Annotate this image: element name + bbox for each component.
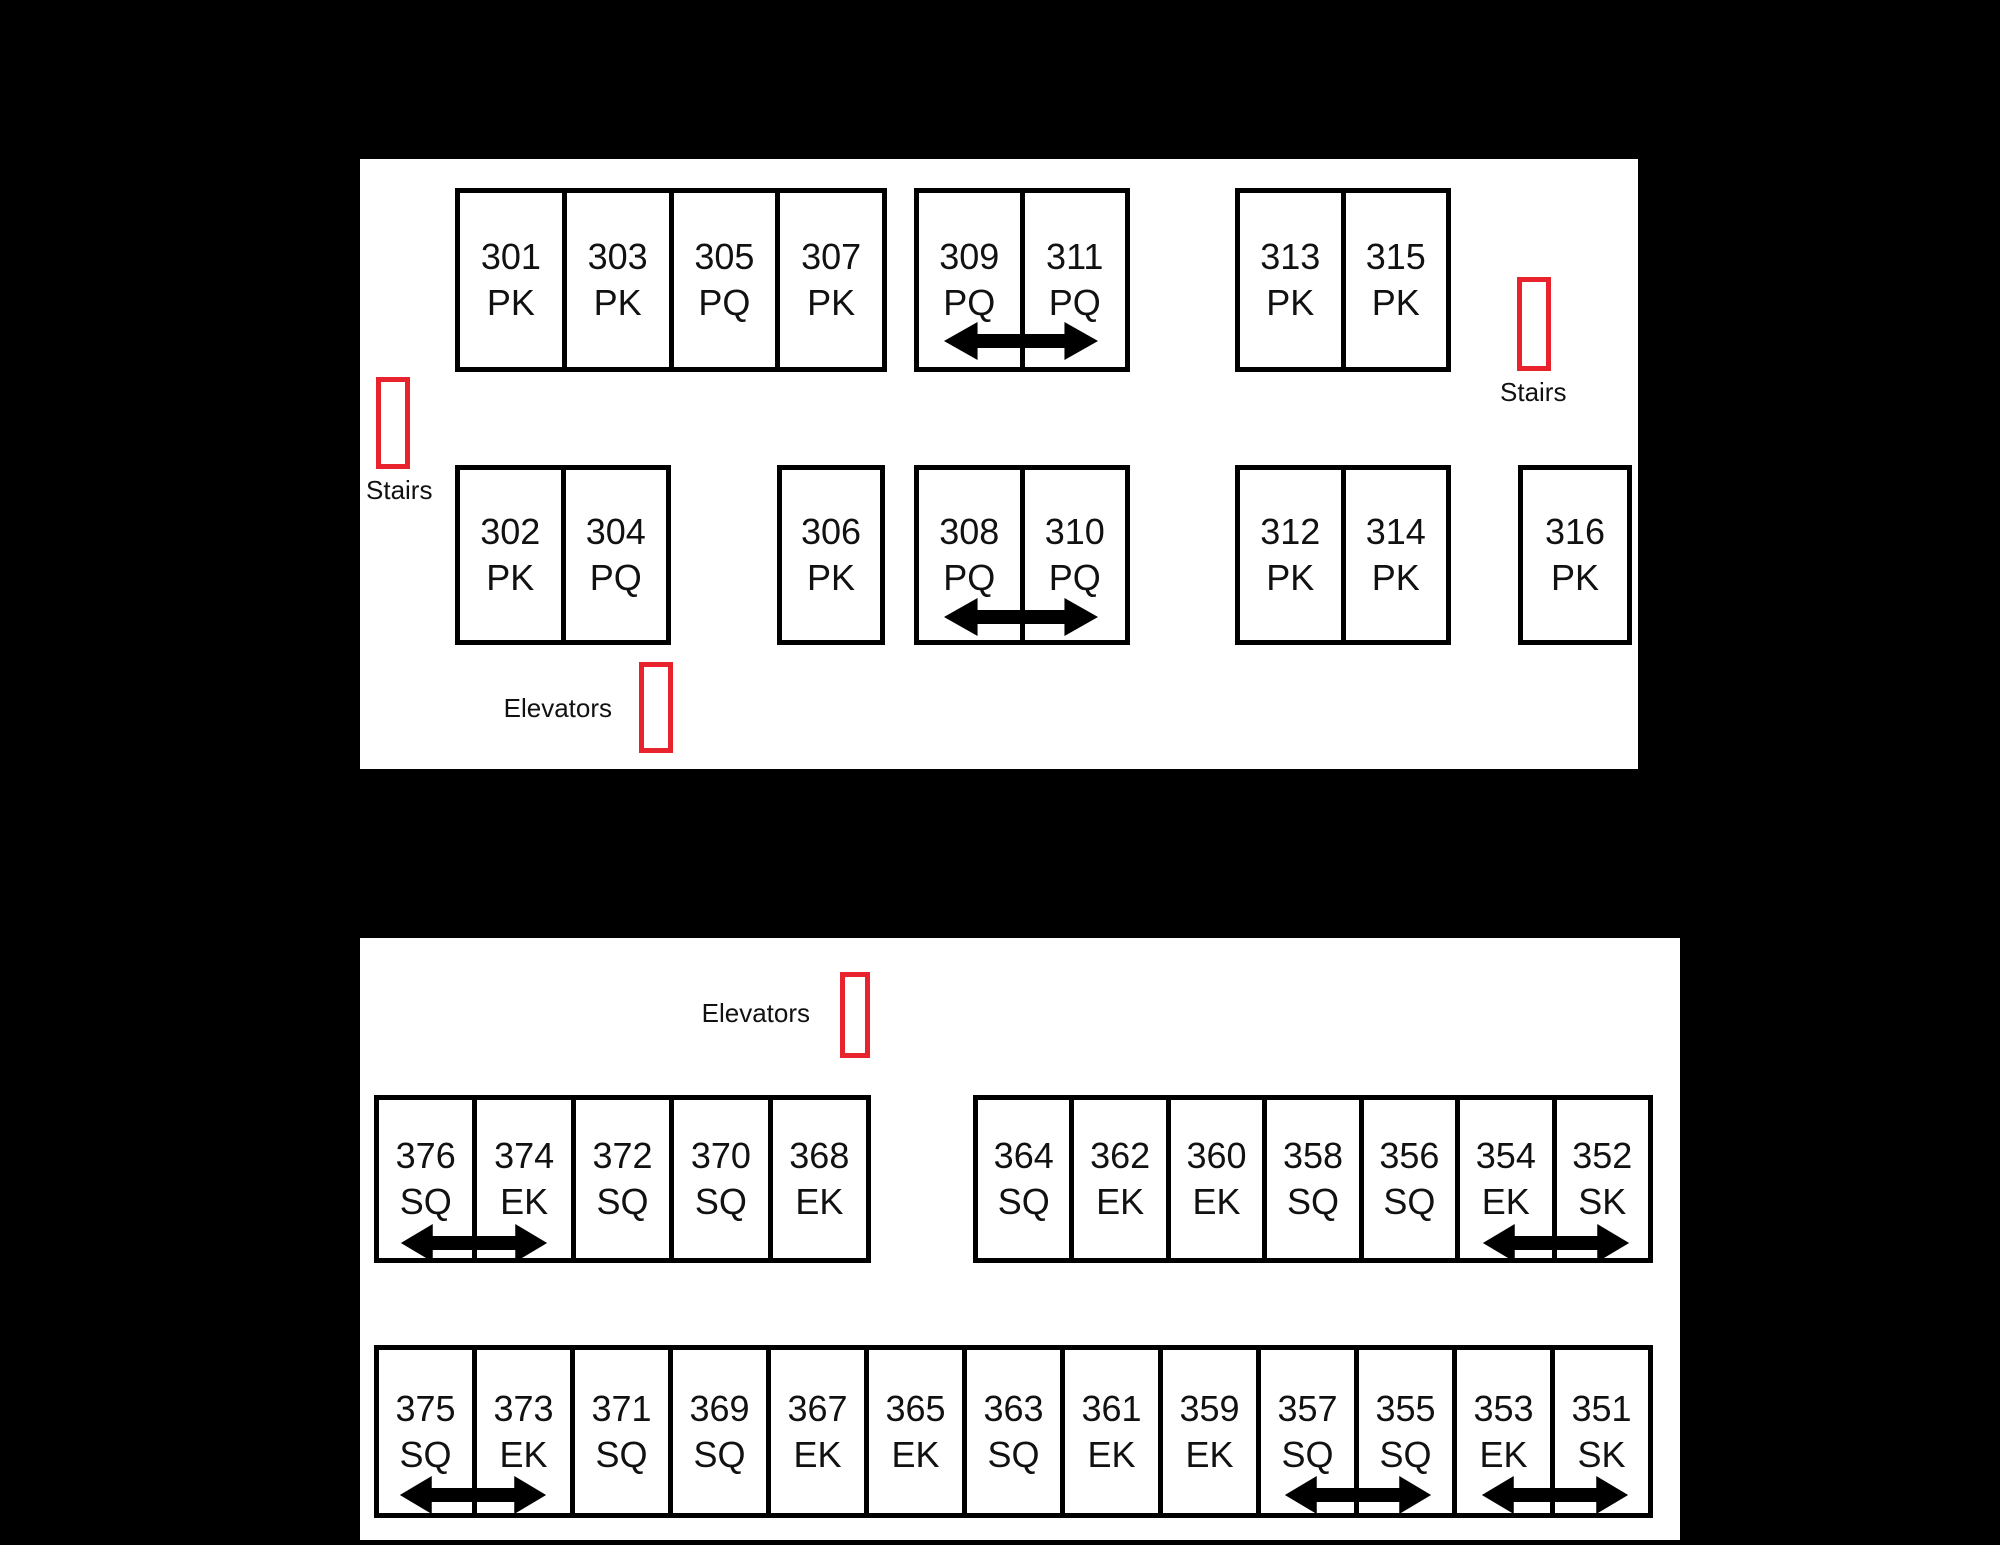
room-315: 315PK [1341,193,1447,367]
room-372: 372SQ [571,1100,669,1258]
room-301: 301PK [460,193,562,367]
connecting-arrow-354-352 [1481,1221,1631,1265]
room-364: 364SQ [978,1100,1069,1258]
elevators-label: Elevators [665,998,810,1028]
room-type: EK [1482,1179,1530,1225]
room-block-301-307: 301PK303PK305PQ307PK [455,188,887,372]
room-number: 351 [1571,1386,1631,1432]
room-number: 358 [1283,1133,1343,1179]
room-number: 369 [689,1386,749,1432]
stairs-right-label: Stairs [1500,377,1566,407]
room-316: 316PK [1523,470,1627,640]
room-block-302-304: 302PK304PQ [455,465,671,645]
room-type: SQ [1379,1432,1431,1478]
room-356: 356SQ [1359,1100,1455,1258]
room-number: 302 [480,509,540,555]
room-type: PQ [698,280,750,326]
floorplan-rooms-351-376: Elevators 376SQ374EK372SQ370SQ368EK 364S… [355,933,1685,1545]
room-307: 307PK [775,193,882,367]
room-type: PK [1372,280,1420,326]
room-block-375-351: 375SQ373EK371SQ369SQ367EK365EK363SQ361EK… [374,1345,1653,1518]
room-type: PK [1266,280,1314,326]
room-type: PK [1551,555,1599,601]
room-number: 312 [1260,509,1320,555]
room-number: 301 [481,234,541,280]
room-360: 360EK [1166,1100,1262,1258]
room-type: SQ [998,1179,1050,1225]
room-type: PK [807,280,855,326]
room-number: 364 [994,1133,1054,1179]
room-number: 311 [1046,234,1103,280]
room-type: EK [499,1432,547,1478]
room-type: SQ [695,1179,747,1225]
room-359: 359EK [1158,1350,1256,1513]
connecting-arrow-375-373 [398,1473,548,1517]
room-number: 310 [1045,509,1105,555]
room-number: 359 [1179,1386,1239,1432]
room-type: EK [500,1179,548,1225]
room-number: 305 [694,234,754,280]
elevators-label: Elevators [472,693,612,723]
room-type: EK [1087,1432,1135,1478]
connecting-arrow-376-374 [399,1221,549,1265]
room-number: 353 [1473,1386,1533,1432]
room-type: PK [807,555,855,601]
room-type: EK [891,1432,939,1478]
room-number: 315 [1366,234,1426,280]
room-type: PK [1372,555,1420,601]
room-number: 352 [1572,1133,1632,1179]
room-block-312-314: 312PK314PK [1235,465,1451,645]
connecting-arrow-357-355 [1283,1473,1433,1517]
room-type: SQ [1287,1179,1339,1225]
stairs-left-label: Stairs [366,475,432,505]
room-number: 309 [939,234,999,280]
room-type: PK [486,555,534,601]
room-358: 358SQ [1262,1100,1358,1258]
room-block-316: 316PK [1518,465,1632,645]
room-367: 367EK [766,1350,864,1513]
room-type: EK [1096,1179,1144,1225]
room-type: SQ [595,1432,647,1478]
connecting-arrow-309-311 [942,319,1100,363]
connecting-arrow-308-310 [942,595,1100,639]
room-type: EK [1193,1179,1241,1225]
room-number: 376 [396,1133,456,1179]
room-number: 374 [494,1133,554,1179]
room-type: SQ [597,1179,649,1225]
room-number: 367 [787,1386,847,1432]
room-number: 361 [1081,1386,1141,1432]
room-type: EK [795,1179,843,1225]
room-number: 363 [983,1386,1043,1432]
room-number: 313 [1260,234,1320,280]
room-304: 304PQ [561,470,667,640]
room-number: 307 [801,234,861,280]
room-type: SQ [1383,1179,1435,1225]
elevators-marker [840,972,870,1058]
room-303: 303PK [562,193,669,367]
room-number: 372 [592,1133,652,1179]
room-362: 362EK [1069,1100,1165,1258]
room-371: 371SQ [570,1350,668,1513]
room-312: 312PK [1240,470,1341,640]
room-363: 363SQ [962,1350,1060,1513]
room-type: SQ [693,1432,745,1478]
room-number: 357 [1277,1386,1337,1432]
room-type: SQ [399,1432,451,1478]
room-type: PQ [590,555,642,601]
room-number: 314 [1366,509,1426,555]
room-type: PK [594,280,642,326]
room-number: 354 [1476,1133,1536,1179]
room-306: 306PK [782,470,880,640]
floorplan-rooms-301-316: 301PK303PK305PQ307PK 309PQ311PQ 313PK315… [355,154,1643,774]
room-369: 369SQ [668,1350,766,1513]
room-number: 316 [1545,509,1605,555]
room-type: EK [793,1432,841,1478]
floorplan-diagram: 301PK303PK305PQ307PK 309PQ311PQ 313PK315… [0,0,2000,1545]
room-type: SQ [987,1432,1039,1478]
room-number: 371 [591,1386,651,1432]
room-number: 365 [885,1386,945,1432]
room-370: 370SQ [669,1100,767,1258]
room-number: 308 [939,509,999,555]
room-number: 375 [395,1386,455,1432]
room-block-306: 306PK [777,465,885,645]
room-type: PK [487,280,535,326]
room-type: SK [1578,1179,1626,1225]
stairs-marker-right [1517,277,1551,371]
room-block-313-315: 313PK315PK [1235,188,1451,372]
room-361: 361EK [1060,1350,1158,1513]
room-number: 362 [1090,1133,1150,1179]
room-type: EK [1185,1432,1233,1478]
room-number: 304 [586,509,646,555]
room-number: 370 [691,1133,751,1179]
room-number: 373 [493,1386,553,1432]
room-type: SK [1577,1432,1625,1478]
room-type: PK [1266,555,1314,601]
room-type: SQ [1281,1432,1333,1478]
room-number: 360 [1187,1133,1247,1179]
elevators-marker [639,662,673,753]
room-type: EK [1479,1432,1527,1478]
room-368: 368EK [768,1100,866,1258]
room-314: 314PK [1341,470,1447,640]
room-number: 355 [1375,1386,1435,1432]
room-302: 302PK [460,470,561,640]
connecting-arrow-353-351 [1480,1473,1630,1517]
room-313: 313PK [1240,193,1341,367]
room-number: 303 [588,234,648,280]
room-number: 306 [801,509,861,555]
room-number: 368 [789,1133,849,1179]
room-365: 365EK [864,1350,962,1513]
room-type: SQ [400,1179,452,1225]
room-number: 356 [1379,1133,1439,1179]
stairs-marker-left [376,377,410,469]
room-305: 305PQ [669,193,776,367]
